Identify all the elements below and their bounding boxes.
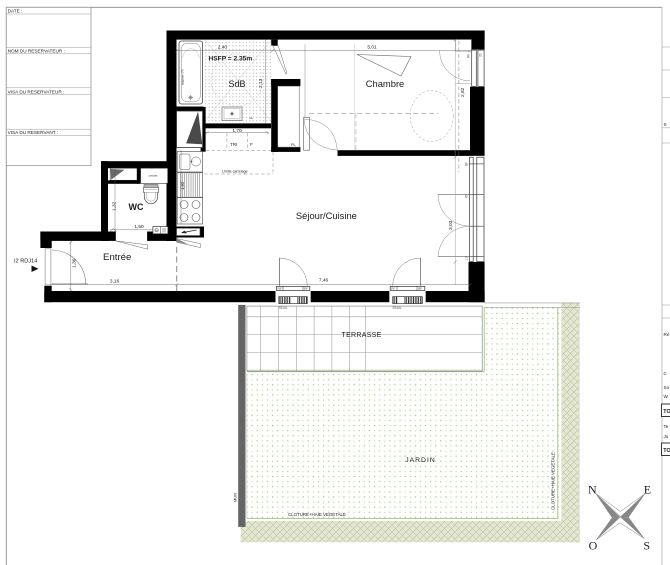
svg-text:3,16: 3,16 — [110, 278, 120, 284]
svg-text:2,82: 2,82 — [460, 87, 466, 97]
svg-text:Ré: Ré — [664, 332, 670, 337]
svg-text:7,46: 7,46 — [319, 278, 329, 284]
svg-text:S: S — [664, 122, 667, 127]
svg-text:Limite carrelage: Limite carrelage — [222, 169, 248, 173]
svg-text:PL: PL — [291, 143, 296, 147]
svg-text:TO: TO — [663, 448, 670, 454]
svg-text:20: 20 — [478, 53, 482, 57]
svg-text:baignoire 170: baignoire 170 — [181, 69, 185, 85]
svg-text:RF: RF — [418, 287, 422, 291]
svg-text:2,13: 2,13 — [258, 78, 264, 88]
svg-text:LL: LL — [250, 116, 254, 120]
svg-text:BF: BF — [465, 162, 469, 166]
svg-text:F: F — [250, 142, 253, 147]
svg-text:3,03: 3,03 — [448, 220, 454, 230]
svg-text:SdB: SdB — [228, 79, 245, 89]
svg-text:JARDIN: JARDIN — [405, 457, 436, 464]
svg-text:TO: TO — [663, 409, 670, 415]
svg-text:N: N — [588, 483, 597, 497]
svg-text:RF: RF — [466, 54, 470, 58]
svg-text:SEUIL: SEUIL — [279, 306, 288, 310]
svg-text:1,32: 1,32 — [112, 201, 118, 211]
svg-text:VISA DU RESERVANT :: VISA DU RESERVANT : — [8, 130, 59, 135]
svg-text:1,92: 1,92 — [180, 181, 185, 190]
svg-text:PF: PF — [391, 287, 395, 291]
svg-text:RF: RF — [278, 287, 282, 291]
svg-text:SEUIL: SEUIL — [393, 306, 402, 310]
svg-text:Entrée: Entrée — [103, 252, 131, 263]
svg-text:5,01: 5,01 — [367, 45, 377, 51]
svg-text:E: E — [644, 483, 651, 497]
svg-text:VISA DU RESERVATEUR :: VISA DU RESERVATEUR : — [8, 89, 65, 94]
svg-text:cumulus: cumulus — [149, 175, 159, 178]
svg-text:Chambre: Chambre — [366, 78, 405, 89]
svg-text:Te: Te — [664, 424, 669, 429]
svg-text:DATE :: DATE : — [8, 9, 23, 14]
svg-text:1,36: 1,36 — [71, 258, 77, 268]
svg-text:S: S — [643, 539, 650, 553]
svg-text:HSFP = 2.35m: HSFP = 2.35m — [209, 55, 253, 62]
svg-text:So: So — [664, 385, 670, 390]
svg-text:MUR: MUR — [233, 493, 238, 502]
svg-text:LU: LU — [465, 255, 469, 260]
svg-text:W: W — [664, 394, 669, 399]
svg-text:CLOTURE+HAIE VEGETALE: CLOTURE+HAIE VEGETALE — [288, 512, 346, 517]
svg-text:CLOTURE+HAIE VEGETALE: CLOTURE+HAIE VEGETALE — [551, 452, 556, 510]
svg-text:I2 RDJ14: I2 RDJ14 — [14, 259, 37, 265]
svg-text:TRI: TRI — [230, 142, 237, 147]
svg-text:Séjour/Cuisine: Séjour/Cuisine — [296, 210, 357, 221]
svg-text:O: O — [589, 539, 598, 553]
svg-text:NOM DU RESERVATEUR :: NOM DU RESERVATEUR : — [8, 49, 65, 54]
svg-text:Jo: Jo — [664, 434, 669, 439]
svg-text:TERRASSE: TERRASSE — [342, 332, 382, 339]
svg-text:1,50: 1,50 — [134, 224, 144, 230]
svg-text:1,70: 1,70 — [232, 128, 242, 134]
svg-text:WC: WC — [129, 202, 144, 212]
svg-text:PF: PF — [304, 287, 308, 291]
svg-text:2,40: 2,40 — [218, 45, 228, 51]
